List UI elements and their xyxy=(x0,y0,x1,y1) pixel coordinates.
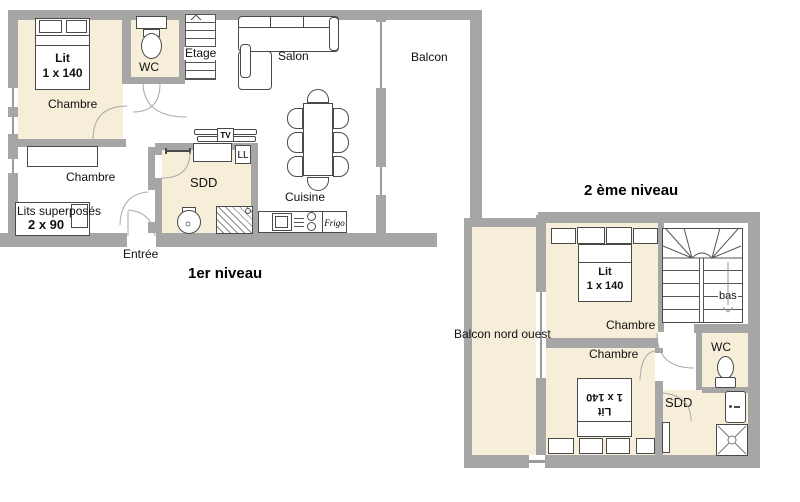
door-arc-hall-f2 xyxy=(657,333,694,368)
stair-up-chevron-f1 xyxy=(191,15,201,20)
stair-winder-left xyxy=(663,228,692,258)
door-arc-bedroom2-f2 xyxy=(640,351,655,380)
stair-winder-arc xyxy=(692,253,712,258)
door-arc-bedroom1-f1 xyxy=(93,106,127,140)
stair-down-chevron-f2 xyxy=(723,307,733,312)
door-arc-sdd-f2 xyxy=(663,393,691,421)
sink-drain-f1 xyxy=(186,222,190,226)
door-arc-sdd-f1 xyxy=(162,152,190,178)
plan-line-overlay xyxy=(0,0,800,502)
door-arc-entrance xyxy=(128,210,155,236)
door-arc-bedroom2-f1 xyxy=(120,192,148,225)
floorplan-canvas: Lit 1 x 140 Chambre WC Etage Salon Balco… xyxy=(0,0,800,502)
shower-drain-f2 xyxy=(728,436,736,444)
stair-winder-right xyxy=(712,228,741,258)
door-arc-hall-f1 xyxy=(143,82,187,117)
